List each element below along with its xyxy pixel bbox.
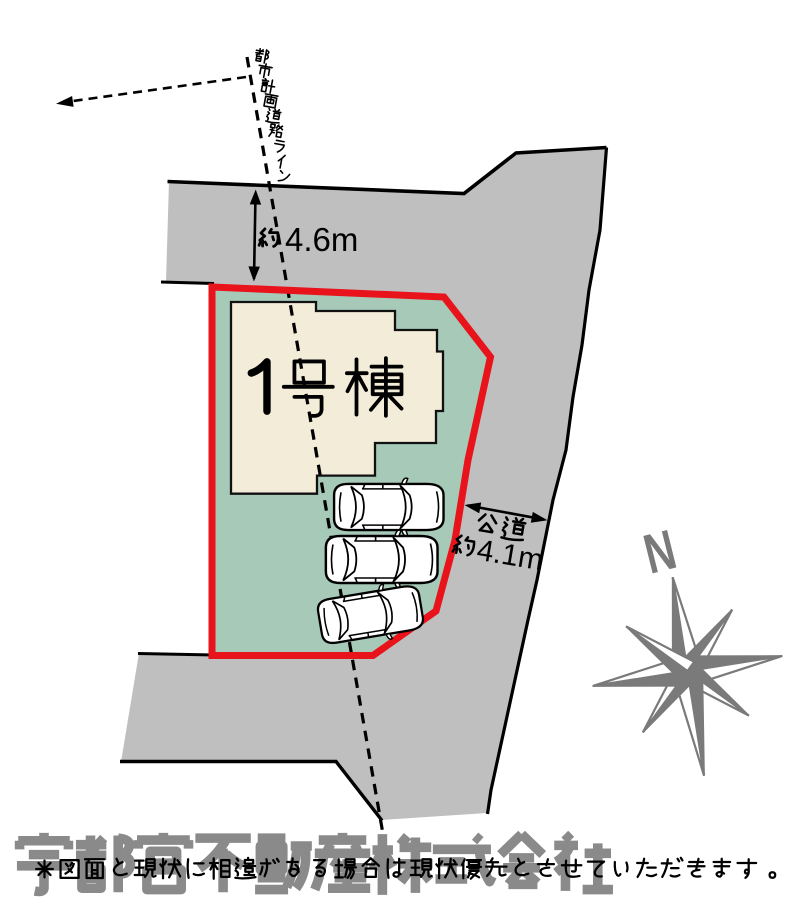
svg-text:4.6m: 4.6m: [285, 221, 358, 258]
svg-text:N: N: [638, 518, 682, 586]
